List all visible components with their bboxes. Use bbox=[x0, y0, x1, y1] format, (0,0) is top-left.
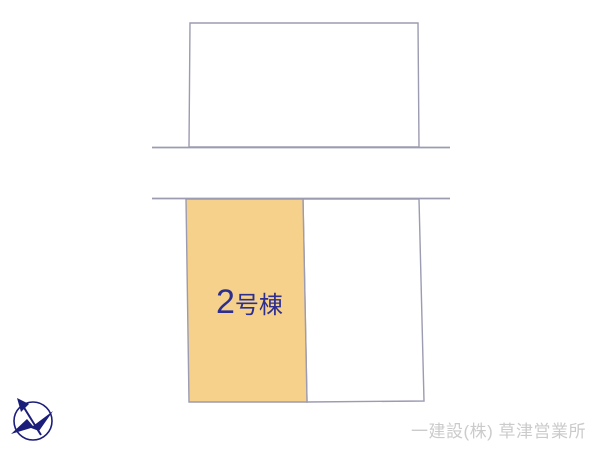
building-label-suffix: 号棟 bbox=[235, 292, 283, 319]
site-plan-drawing: 2号棟 一建設(株) 草津営業所 bbox=[0, 0, 600, 450]
adjacent-parcel-outline bbox=[303, 199, 424, 402]
compass-bird-swoosh bbox=[11, 411, 53, 434]
site-plan-canvas: 2号棟 一建設(株) 草津営業所 bbox=[0, 0, 600, 450]
compass-arrowhead bbox=[17, 398, 29, 412]
upper-lot-outline bbox=[189, 23, 419, 147]
building-label-number: 2 bbox=[216, 283, 235, 321]
compass-north-arrow-icon bbox=[11, 398, 53, 440]
company-watermark: 一建設(株) 草津営業所 bbox=[411, 422, 586, 441]
